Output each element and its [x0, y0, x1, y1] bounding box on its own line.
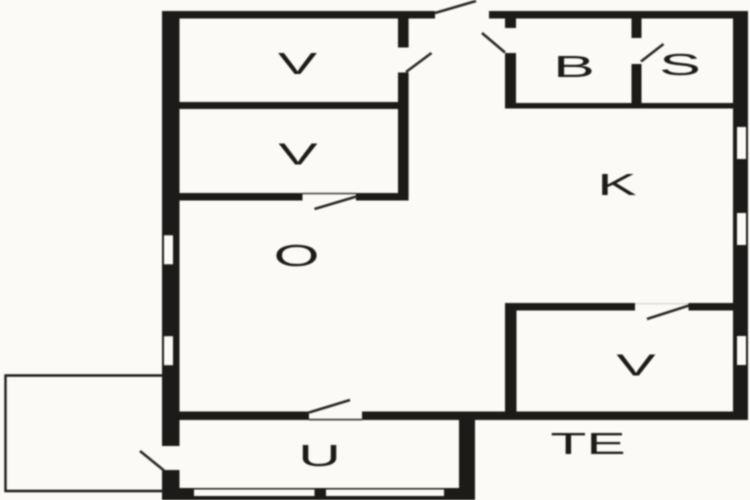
- svg-text:TE: TE: [550, 426, 625, 461]
- svg-text:U: U: [298, 438, 341, 473]
- svg-text:V: V: [616, 347, 656, 382]
- svg-text:O: O: [274, 238, 320, 273]
- svg-text:K: K: [597, 167, 636, 202]
- svg-text:S: S: [659, 48, 701, 83]
- svg-text:V: V: [278, 136, 318, 171]
- svg-text:V: V: [278, 46, 318, 81]
- svg-text:B: B: [553, 50, 595, 85]
